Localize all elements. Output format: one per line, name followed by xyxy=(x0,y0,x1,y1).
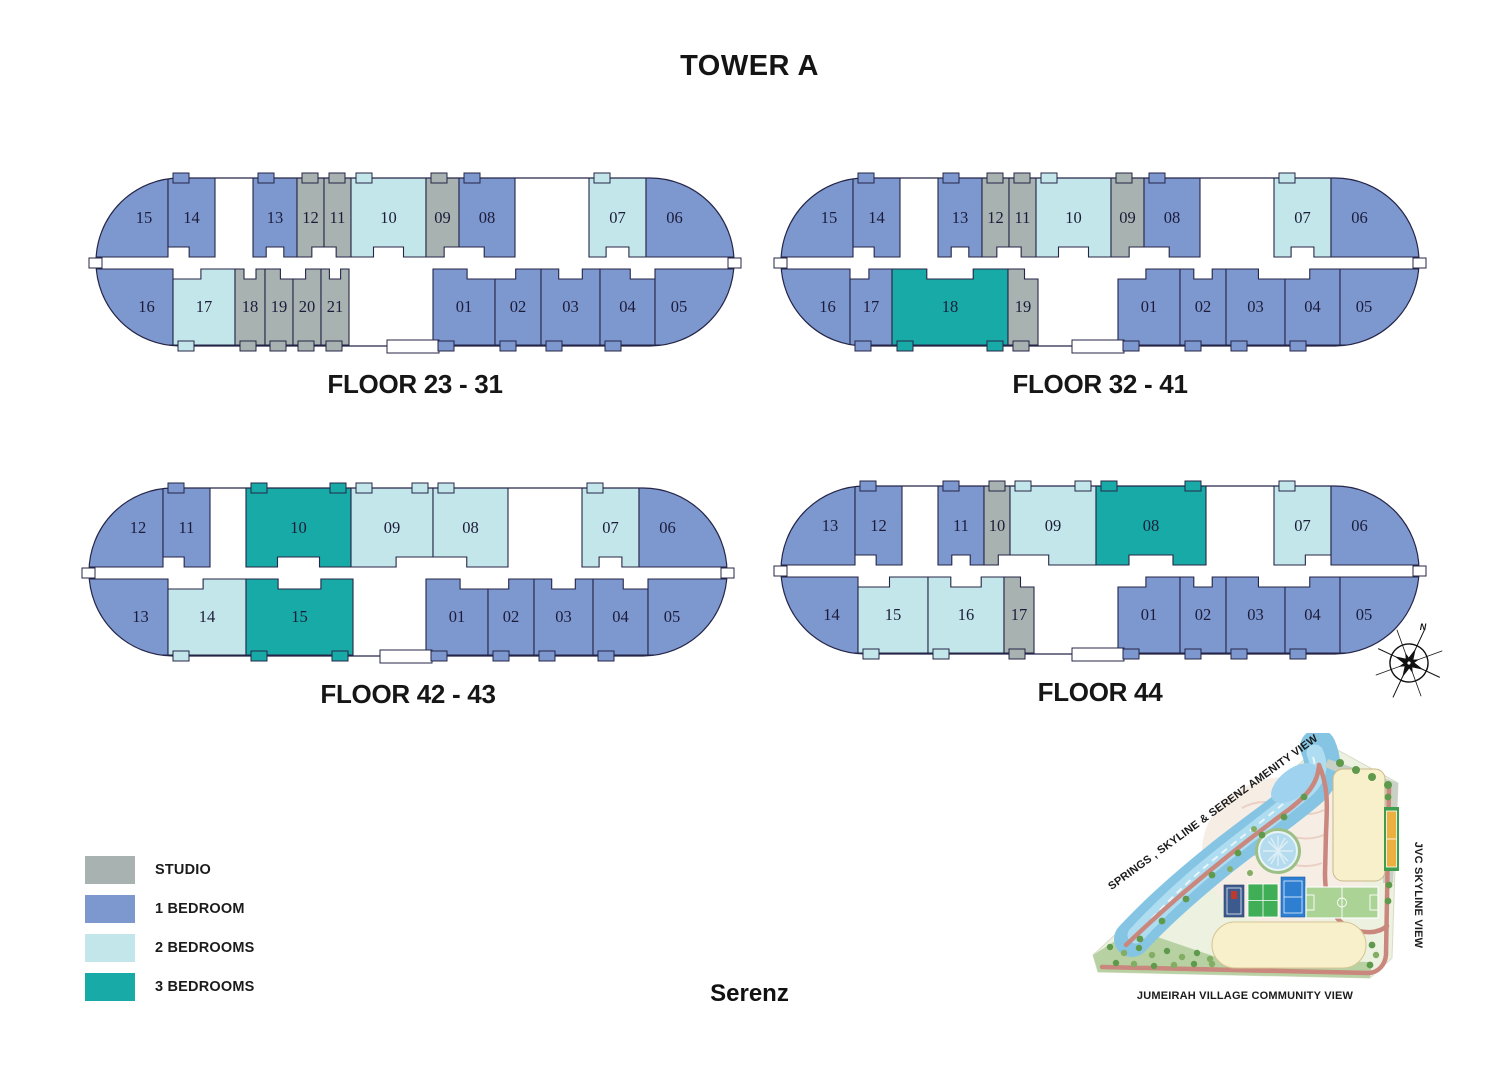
balcony-tab xyxy=(1075,481,1091,491)
corridor-stub xyxy=(82,568,95,578)
balcony-tab xyxy=(464,173,480,183)
unit-number: 04 xyxy=(1304,605,1321,624)
unit-15 xyxy=(772,178,853,257)
unit-number: 01 xyxy=(1141,605,1158,624)
unit-number: 06 xyxy=(666,208,683,227)
floorplan-23-31: 1514131211100908070616171819202101020304… xyxy=(87,168,743,400)
unit-number: 21 xyxy=(327,297,344,316)
balcony-tab xyxy=(546,341,562,351)
unit-number: 05 xyxy=(671,297,688,316)
balcony-tab xyxy=(863,649,879,659)
balcony-tab xyxy=(168,483,184,493)
unit-number: 01 xyxy=(449,607,466,626)
unit-number: 01 xyxy=(456,297,473,316)
unit-number: 19 xyxy=(271,297,288,316)
balcony-tab xyxy=(1231,649,1247,659)
balcony-tab xyxy=(493,651,509,661)
site-map: SPRINGS , SKYLINE & SERENZ AMENITY VIEW … xyxy=(1082,733,1452,1023)
balcony-tab xyxy=(178,341,194,351)
corridor-stub xyxy=(89,258,102,268)
unit-number: 05 xyxy=(664,607,681,626)
unit-number: 11 xyxy=(953,516,969,535)
unit-number: 03 xyxy=(562,297,579,316)
unit-12 xyxy=(80,488,163,567)
unit-number: 12 xyxy=(987,208,1004,227)
corridor-stub xyxy=(774,258,787,268)
balcony-tab xyxy=(326,341,342,351)
legend-label: STUDIO xyxy=(155,862,211,878)
unit-number: 10 xyxy=(380,208,397,227)
balcony-tab xyxy=(329,173,345,183)
unit-16 xyxy=(772,269,850,345)
balcony-tab xyxy=(858,173,874,183)
unit-number: 03 xyxy=(1247,605,1264,624)
unit-number: 08 xyxy=(462,518,479,537)
jvc-skyline-view-label: JVC SKYLINE VIEW xyxy=(1412,842,1424,949)
balcony-tab xyxy=(987,341,1003,351)
unit-number: 02 xyxy=(1195,297,1212,316)
legend-label: 1 BEDROOM xyxy=(155,901,245,917)
balcony-tab xyxy=(240,341,256,351)
floorplan-label: FLOOR 32 - 41 xyxy=(772,369,1428,400)
balcony-tab xyxy=(1101,481,1117,491)
unit-number: 03 xyxy=(1247,297,1264,316)
unit-number: 04 xyxy=(619,297,636,316)
legend-swatch-br2 xyxy=(85,934,135,962)
unit-number: 10 xyxy=(290,518,307,537)
balcony-tab xyxy=(1009,649,1025,659)
unit-number: 10 xyxy=(1065,208,1082,227)
unit-06 xyxy=(1331,486,1428,565)
unit-number: 11 xyxy=(1015,208,1031,227)
balcony-tab xyxy=(251,483,267,493)
unit-number: 04 xyxy=(1304,297,1321,316)
balcony-tab xyxy=(1015,481,1031,491)
balcony-tab xyxy=(1123,341,1139,351)
unit-number: 09 xyxy=(384,518,401,537)
balcony-tab xyxy=(860,481,876,491)
floorplate-42-43: 121110090807061314150102030405 xyxy=(80,478,736,666)
balcony-tab xyxy=(605,341,621,351)
floorplan-label: FLOOR 23 - 31 xyxy=(87,369,743,400)
balcony-tab xyxy=(438,483,454,493)
floorplan-42-43: 121110090807061314150102030405 FLOOR 42 … xyxy=(80,478,736,710)
entrance-stub xyxy=(380,650,432,663)
corridor-stub xyxy=(1413,258,1426,268)
balcony-tab xyxy=(298,341,314,351)
balcony-tab xyxy=(1041,173,1057,183)
unit-number: 02 xyxy=(1195,605,1212,624)
unit-number: 14 xyxy=(868,208,885,227)
unit-number: 08 xyxy=(1143,516,1160,535)
unit-05 xyxy=(1340,269,1428,345)
unit-number: 12 xyxy=(130,518,147,537)
balcony-tab xyxy=(987,173,1003,183)
tower-building xyxy=(1333,769,1385,881)
balcony-tab xyxy=(1279,173,1295,183)
entrance-stub xyxy=(1072,648,1124,661)
unit-number: 11 xyxy=(330,208,346,227)
balcony-tab xyxy=(356,173,372,183)
unit-number: 14 xyxy=(183,208,200,227)
unit-14 xyxy=(772,577,858,653)
balcony-tab xyxy=(173,173,189,183)
unit-number: 09 xyxy=(1119,208,1136,227)
compass-rose: N xyxy=(1368,610,1452,710)
unit-number: 12 xyxy=(302,208,319,227)
unit-number: 08 xyxy=(1164,208,1181,227)
balcony-tab xyxy=(173,651,189,661)
balcony-tab xyxy=(330,483,346,493)
unit-number: 06 xyxy=(1351,208,1368,227)
legend-swatch-st xyxy=(85,856,135,884)
balcony-tab xyxy=(1185,481,1201,491)
unit-number: 16 xyxy=(819,297,836,316)
unit-number: 14 xyxy=(823,605,840,624)
entrance-stub xyxy=(387,340,439,353)
balcony-tab xyxy=(431,651,447,661)
floorplate-44: 1312111009080706141516170102030405 xyxy=(772,476,1428,664)
balcony-tab xyxy=(1123,649,1139,659)
unit-number: 18 xyxy=(942,297,959,316)
unit-number: 02 xyxy=(503,607,520,626)
unit-05 xyxy=(655,269,743,345)
compass-north-label: N xyxy=(1420,622,1427,632)
balcony-tab xyxy=(1014,173,1030,183)
unit-06 xyxy=(1331,178,1428,257)
unit-number: 07 xyxy=(609,208,626,227)
balcony-tab xyxy=(1149,173,1165,183)
unit-number: 18 xyxy=(242,297,259,316)
unit-number: 07 xyxy=(602,518,619,537)
balcony-tab xyxy=(258,173,274,183)
balcony-tab xyxy=(1231,341,1247,351)
unit-number: 13 xyxy=(822,516,839,535)
entrance-stub xyxy=(1072,340,1124,353)
compass-star xyxy=(1368,614,1452,710)
podium-building xyxy=(1212,922,1366,968)
unit-layer xyxy=(772,486,1428,653)
balcony-tab xyxy=(933,649,949,659)
unit-number: 20 xyxy=(299,297,316,316)
unit-number: 03 xyxy=(555,607,572,626)
balcony-tab xyxy=(302,173,318,183)
unit-number: 01 xyxy=(1141,297,1158,316)
floorplan-32-41: 15141312111009080706161718190102030405 F… xyxy=(772,168,1428,400)
balcony-tab xyxy=(1279,481,1295,491)
page-title: TOWER A xyxy=(0,50,1499,83)
unit-number: 04 xyxy=(612,607,629,626)
unit-number: 15 xyxy=(291,607,308,626)
unit-number: 15 xyxy=(136,208,153,227)
floorplate-32-41: 15141312111009080706161718190102030405 xyxy=(772,168,1428,356)
unit-number: 13 xyxy=(132,607,149,626)
balcony-tab xyxy=(1185,341,1201,351)
balcony-tab xyxy=(587,483,603,493)
corridor-stub xyxy=(728,258,741,268)
unit-number: 10 xyxy=(989,516,1006,535)
unit-number: 13 xyxy=(267,208,284,227)
legend-swatch-br1 xyxy=(85,895,135,923)
unit-number: 17 xyxy=(863,297,880,316)
unit-number: 15 xyxy=(885,605,902,624)
unit-number: 15 xyxy=(821,208,838,227)
unit-number: 16 xyxy=(138,297,155,316)
balcony-tab xyxy=(438,341,454,351)
floorplan-label: FLOOR 44 xyxy=(772,677,1428,708)
unit-number: 09 xyxy=(434,208,451,227)
unit-06 xyxy=(646,178,743,257)
unit-layer xyxy=(87,178,743,345)
unit-15 xyxy=(87,178,168,257)
balcony-tab xyxy=(598,651,614,661)
floorplan-44: 1312111009080706141516170102030405 FLOOR… xyxy=(772,476,1428,708)
balcony-tab xyxy=(332,651,348,661)
unit-number: 06 xyxy=(1351,516,1368,535)
legend-row: STUDIO xyxy=(85,856,255,884)
unit-number: 08 xyxy=(479,208,496,227)
balcony-tab xyxy=(943,173,959,183)
unit-13 xyxy=(772,486,855,565)
balcony-tab xyxy=(1116,173,1132,183)
balcony-tab xyxy=(943,481,959,491)
unit-number: 11 xyxy=(179,518,195,537)
floorplan-label: FLOOR 42 - 43 xyxy=(80,679,736,710)
unit-13 xyxy=(80,579,168,655)
page: TOWER A 15141312111009080706161718192021… xyxy=(0,0,1499,1071)
unit-number: 09 xyxy=(1045,516,1062,535)
unit-layer xyxy=(80,488,736,655)
balcony-tab xyxy=(1185,649,1201,659)
corridor-stub xyxy=(1413,566,1426,576)
unit-number: 07 xyxy=(1294,208,1311,227)
balcony-tab xyxy=(594,173,610,183)
balcony-tab xyxy=(251,651,267,661)
balcony-tab xyxy=(989,481,1005,491)
balcony-tab xyxy=(855,341,871,351)
balcony-tab xyxy=(500,341,516,351)
unit-number: 17 xyxy=(1011,605,1028,624)
unit-number: 02 xyxy=(510,297,527,316)
legend-label: 2 BEDROOMS xyxy=(155,940,255,956)
balcony-tab xyxy=(1290,341,1306,351)
balcony-tab xyxy=(1013,341,1029,351)
unit-16 xyxy=(87,269,173,345)
unit-number: 16 xyxy=(958,605,975,624)
unit-number: 17 xyxy=(196,297,213,316)
floorplate-23-31: 1514131211100908070616171819202101020304… xyxy=(87,168,743,356)
unit-number: 13 xyxy=(952,208,969,227)
balcony-tab xyxy=(1290,649,1306,659)
unit-layer xyxy=(772,178,1428,345)
balcony-tab xyxy=(431,173,447,183)
balcony-tab xyxy=(356,483,372,493)
unit-number: 06 xyxy=(659,518,676,537)
unit-06 xyxy=(639,488,736,567)
legend-row: 1 BEDROOM xyxy=(85,895,255,923)
unit-number: 12 xyxy=(870,516,887,535)
unit-number: 14 xyxy=(199,607,216,626)
unit-number: 05 xyxy=(1356,297,1373,316)
community-view-label: JUMEIRAH VILLAGE COMMUNITY VIEW xyxy=(1137,990,1354,1002)
basketball-key xyxy=(1231,891,1237,899)
corridor-stub xyxy=(774,566,787,576)
unit-number: 07 xyxy=(1294,516,1311,535)
unit-number: 19 xyxy=(1015,297,1032,316)
balcony-tab xyxy=(412,483,428,493)
balcony-tab xyxy=(270,341,286,351)
corridor-stub xyxy=(721,568,734,578)
legend-row: 2 BEDROOMS xyxy=(85,934,255,962)
balcony-tab xyxy=(897,341,913,351)
unit-05 xyxy=(648,579,736,655)
balcony-tab xyxy=(539,651,555,661)
